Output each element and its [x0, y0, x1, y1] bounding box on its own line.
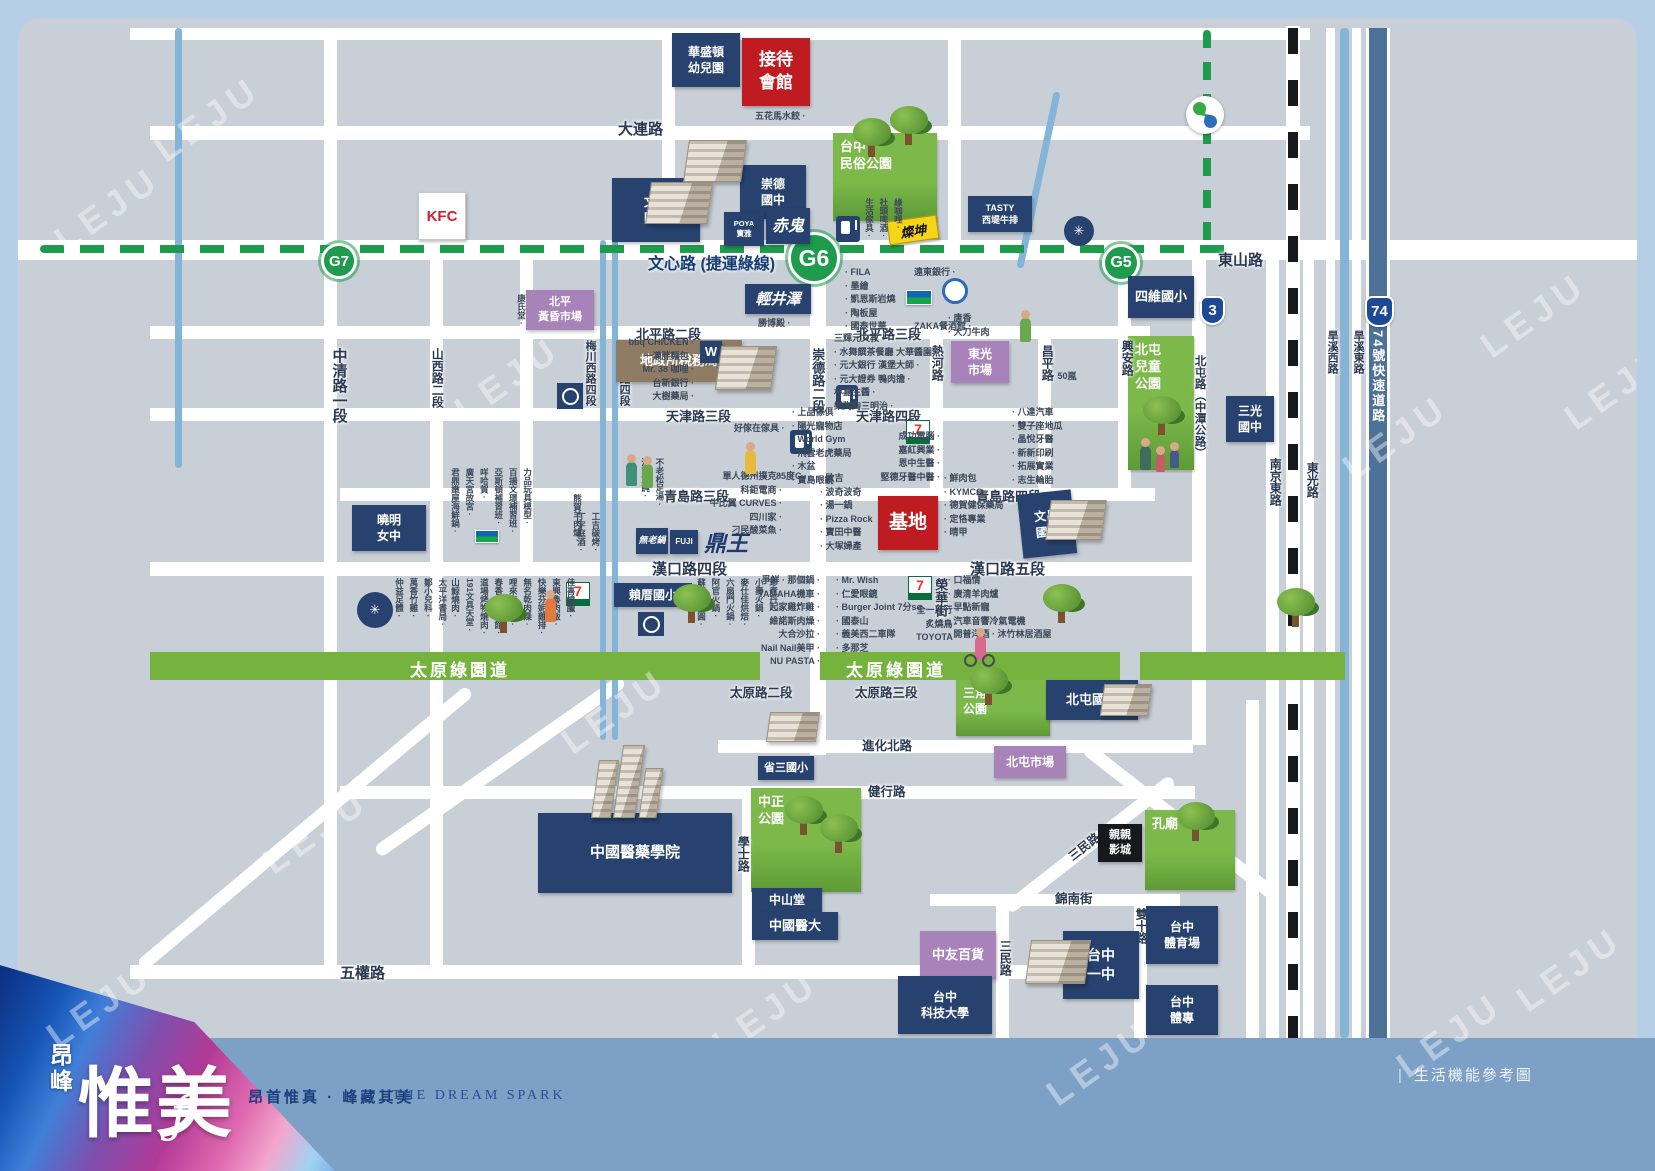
road-label-wuquan: 五權路	[340, 962, 385, 983]
taichung-stadium: 台中 體育場	[1146, 906, 1218, 964]
poi-list-site-east: · 鮮肉包 · KYMCO · 德賀健保藥局 · 定恪專業 · 晴甲	[944, 472, 1004, 540]
tree-belt-4	[1292, 612, 1299, 627]
road-label-zhongqing: 中清路一段	[330, 348, 347, 423]
qinqin-cinema: 親親 影城	[1098, 824, 1142, 862]
building-shengsan	[766, 712, 820, 742]
tree-zhongzheng-1	[800, 820, 807, 835]
karuizawa-hotpot: 輕井澤	[745, 284, 811, 314]
watermark-1: LEJU	[147, 67, 269, 170]
highway-74-shield: 74	[1365, 296, 1394, 327]
aka-oni-hotpot: 赤鬼	[766, 208, 810, 244]
taichung-pe-college: 台中 體專	[1146, 985, 1218, 1035]
tree-minsu-2	[905, 130, 912, 145]
brand-tagline: 昂首惟真 · 峰藏其美	[248, 1086, 414, 1107]
poi-list-tianjin4b: 成功電腦 · 嘉紅興業 · 恩中生醫 · 堅德牙醫中醫 ·	[870, 430, 940, 484]
tree-confucius	[1192, 826, 1199, 841]
expressway-74	[1366, 28, 1390, 1038]
taichung-univ-sci-tech: 台中 科技大學	[898, 976, 992, 1034]
appliance-logo-2	[638, 612, 664, 636]
xiaoming-girls-high: 曉明 女中	[352, 505, 426, 551]
road-label-jinnan: 錦南街	[1055, 888, 1093, 907]
poi-v-shanjing: 佳喜燒臘 · 東興魯肉飯 · 快樂芬妮雞排 · 無名乾肉燥 · 哩來市牛排 · …	[448, 578, 578, 664]
tree-belt-3	[1058, 608, 1065, 623]
road-label-wenxin: 文心路 (捷運綠線)	[648, 250, 775, 274]
poi-list-hankou4: 爭鮮 · 那個鍋 · YAMAHA機車 · 起家雞炸雞 · 維諾斯肉燥 · 大合…	[730, 574, 820, 669]
bike-wheel-2	[982, 654, 995, 667]
poi-wuhuama: 五花馬水餃 ·	[755, 110, 806, 124]
shengsan-elementary: 省三國小	[758, 756, 814, 780]
map-canvas: 台中 民俗公園北屯 兒童 公園三角 公園中正 公園孔廟G7G6G5374大連路文…	[18, 18, 1637, 1038]
road-label-jianxing: 健行路	[868, 781, 906, 800]
road-label-dongshan: 東山路	[1218, 249, 1263, 270]
mrt-green-line-h	[40, 245, 1230, 253]
road-label-dalian: 大連路	[618, 118, 663, 139]
building-beitun-elem	[1100, 684, 1152, 716]
brand-flourish: ƒ	[170, 1086, 189, 1144]
poi-list-hankou5: · 口福情 · 廣清羊肉爐 · 早點新寵 · 汽車音響冷氣電機 · 開普洋酒 ·…	[948, 574, 1052, 642]
washington-kindergarten: 華盛頓 幼兒園	[672, 33, 740, 87]
poi-list-fila: · FILA · 墨繪 · 凱恩斯岩燒 · 陶板屋 · 國泰世華	[845, 266, 896, 334]
brand-name-main: 惟美	[78, 1042, 234, 1152]
person-family-3	[1170, 450, 1179, 468]
person-family-1	[1140, 446, 1151, 470]
highway-3-shield: 3	[1200, 296, 1225, 325]
tree-sanjiao	[985, 690, 992, 705]
poi-haojia: 好傢在傢具 ·	[734, 422, 785, 436]
poi-v-starbucks-row: 太平洋書局 · 鄒小兒科 · 萬香竹雞 · 仲益足體 ·	[392, 578, 450, 652]
appliance-logo-1	[557, 383, 583, 409]
mrt-green-line-v	[1203, 30, 1211, 250]
gas-station-1	[836, 216, 860, 242]
road-label-nanjing-e: 南京東路	[1268, 458, 1281, 506]
road-label-xueshi: 學士路	[736, 836, 749, 872]
road-label-hanxi-e: 旱溪東路	[1352, 330, 1364, 374]
road-label-shanxi: 山西路二段	[430, 348, 443, 408]
poi-v-xionghe: 熊賀羊肉爐 ·	[570, 494, 584, 556]
road-label-taiyuan2: 太原路二段	[730, 682, 793, 701]
road-label-hankou4: 漢口路四段	[652, 558, 727, 579]
road-label-hanxi-w: 旱溪西路	[1326, 330, 1338, 374]
poi-list-qingdao3: 單人德州撲克 · 科鉅電商 · 牛比翼 CURVES · 四川家 · 刁民酸菜魚…	[670, 470, 782, 538]
road-dongguang	[1303, 255, 1314, 1038]
road-hanxi-e	[1352, 28, 1361, 1038]
person-woman-yellow	[745, 450, 756, 474]
road-label-beitun: 北屯路（中潭公路）	[1193, 355, 1206, 459]
poi-v-xiaoming: 力品玩具模型 · 百揚文璟補習班 · 亞斯頓補習班 · 咩哈賀 · 廣天宮故宮 …	[448, 468, 535, 556]
road-label-sanmin-s: 三民路	[998, 940, 1011, 976]
bike-wheel-1	[964, 654, 977, 667]
poi-v-minsu: 綠咖哩 · 社頭啤酒 · 生活傢具 ·	[862, 198, 905, 252]
building-wenchang	[1045, 500, 1107, 540]
river-hanxi	[1340, 28, 1349, 1038]
tree-zhongzheng-2	[835, 838, 842, 853]
poi-list-east: · 八達汽車 · 雙子座地瓜 · 晶悅牙醫 · 新新印刷 · 拓展實業 · 志生…	[1012, 406, 1063, 487]
poi-list-beiping3: 三輝元文教 · · 水舞饌茶餐廳 大華醬園 · · 元大銀行 漢堡大師 · · …	[834, 332, 1004, 413]
china-medical-univ: 中國醫大	[752, 912, 838, 940]
road-label-taiyuan3: 太原路三段	[855, 682, 918, 701]
road-v-3	[948, 28, 961, 240]
road-wuquan	[130, 965, 1030, 979]
station-g7: G7	[321, 243, 357, 279]
road-label-chongde2: 崇德路二段	[810, 348, 824, 413]
chungyo-department: 中友百貨	[920, 931, 996, 979]
road-hanxi-w	[1326, 28, 1335, 1038]
road-label-xingan: 興安路	[1120, 340, 1133, 376]
watermark-6: LEJU	[1473, 263, 1595, 366]
poi-50lan: · 50嵐	[1052, 370, 1077, 384]
watermark-10: LEJU	[1509, 917, 1631, 1020]
person-runner	[545, 598, 556, 622]
building-tax-office	[715, 346, 777, 390]
china-medical-college: 中國醫藥學院	[538, 813, 732, 893]
watermark-7: LEJU	[1557, 335, 1637, 438]
location-map-poster: 台中 民俗公園北屯 兒童 公園三角 公園中正 公園孔廟G7G6G5374大連路文…	[0, 0, 1655, 1171]
person-couple-2	[642, 464, 653, 488]
label-green-belt-2: 太原綠園道	[846, 656, 946, 681]
tower-cmu-3	[638, 768, 663, 818]
starbucks-2: ✳	[357, 592, 393, 628]
tree-belt-2	[688, 608, 695, 623]
watermark-3: LEJU	[255, 779, 377, 882]
building-first-high	[1025, 940, 1091, 984]
person-market	[1020, 318, 1031, 342]
building-wenxin	[645, 182, 713, 224]
zhongshan-hall: 中山堂	[752, 888, 822, 912]
poi-list-site-west: · 歐吉 · 波奇波奇 · 湯一鍋 · Pizza Rock · 寶田中醫 · …	[820, 472, 873, 553]
sanguang-junior-high: 三光 國中	[1226, 396, 1274, 442]
siwei-elementary: 四維國小	[1128, 276, 1194, 318]
building-chongde	[683, 140, 747, 182]
beitun-market: 北屯市場	[994, 746, 1066, 778]
poi-list-bbq: bbq CHICKEN · 一瀨胖麵包 · Mr. 38 咖哩 · 台新銀行 ·…	[584, 336, 694, 404]
road-label-dongguang: 東光路	[1305, 462, 1318, 498]
starbucks-1: ✳	[1064, 216, 1094, 246]
road-label-jinhua-n: 進化北路	[862, 735, 912, 754]
tree-beitun-park	[1158, 420, 1165, 435]
tasty-steak: TASTY 西堤牛排	[968, 196, 1032, 232]
tree-belt-1	[500, 618, 507, 633]
road-label-expwy74: 74號快速道路	[1370, 330, 1384, 423]
poi-shengboden: 勝博殿 ·	[758, 317, 791, 331]
person-family-2	[1156, 454, 1165, 472]
project-site: 基地	[878, 496, 938, 550]
person-couple-1	[626, 462, 637, 486]
poya-store: POYA 寶雅	[724, 212, 764, 246]
road-nanjing-e	[1266, 255, 1279, 1038]
kfc-logo: KFC	[418, 192, 466, 240]
tree-minsu-1	[868, 142, 875, 157]
brand-subtitle: THE DREAM SPARK	[392, 1088, 566, 1104]
road-label-tianjin3: 天津路三段	[666, 406, 731, 425]
beiping-evening-market: 北平 黃昏市場	[526, 290, 594, 330]
taiyuan-green-belt-3	[1140, 652, 1345, 680]
railway	[1288, 28, 1298, 1038]
reception-center: 接待 會館	[742, 38, 810, 106]
taichung-mrt-logo	[1186, 96, 1224, 134]
